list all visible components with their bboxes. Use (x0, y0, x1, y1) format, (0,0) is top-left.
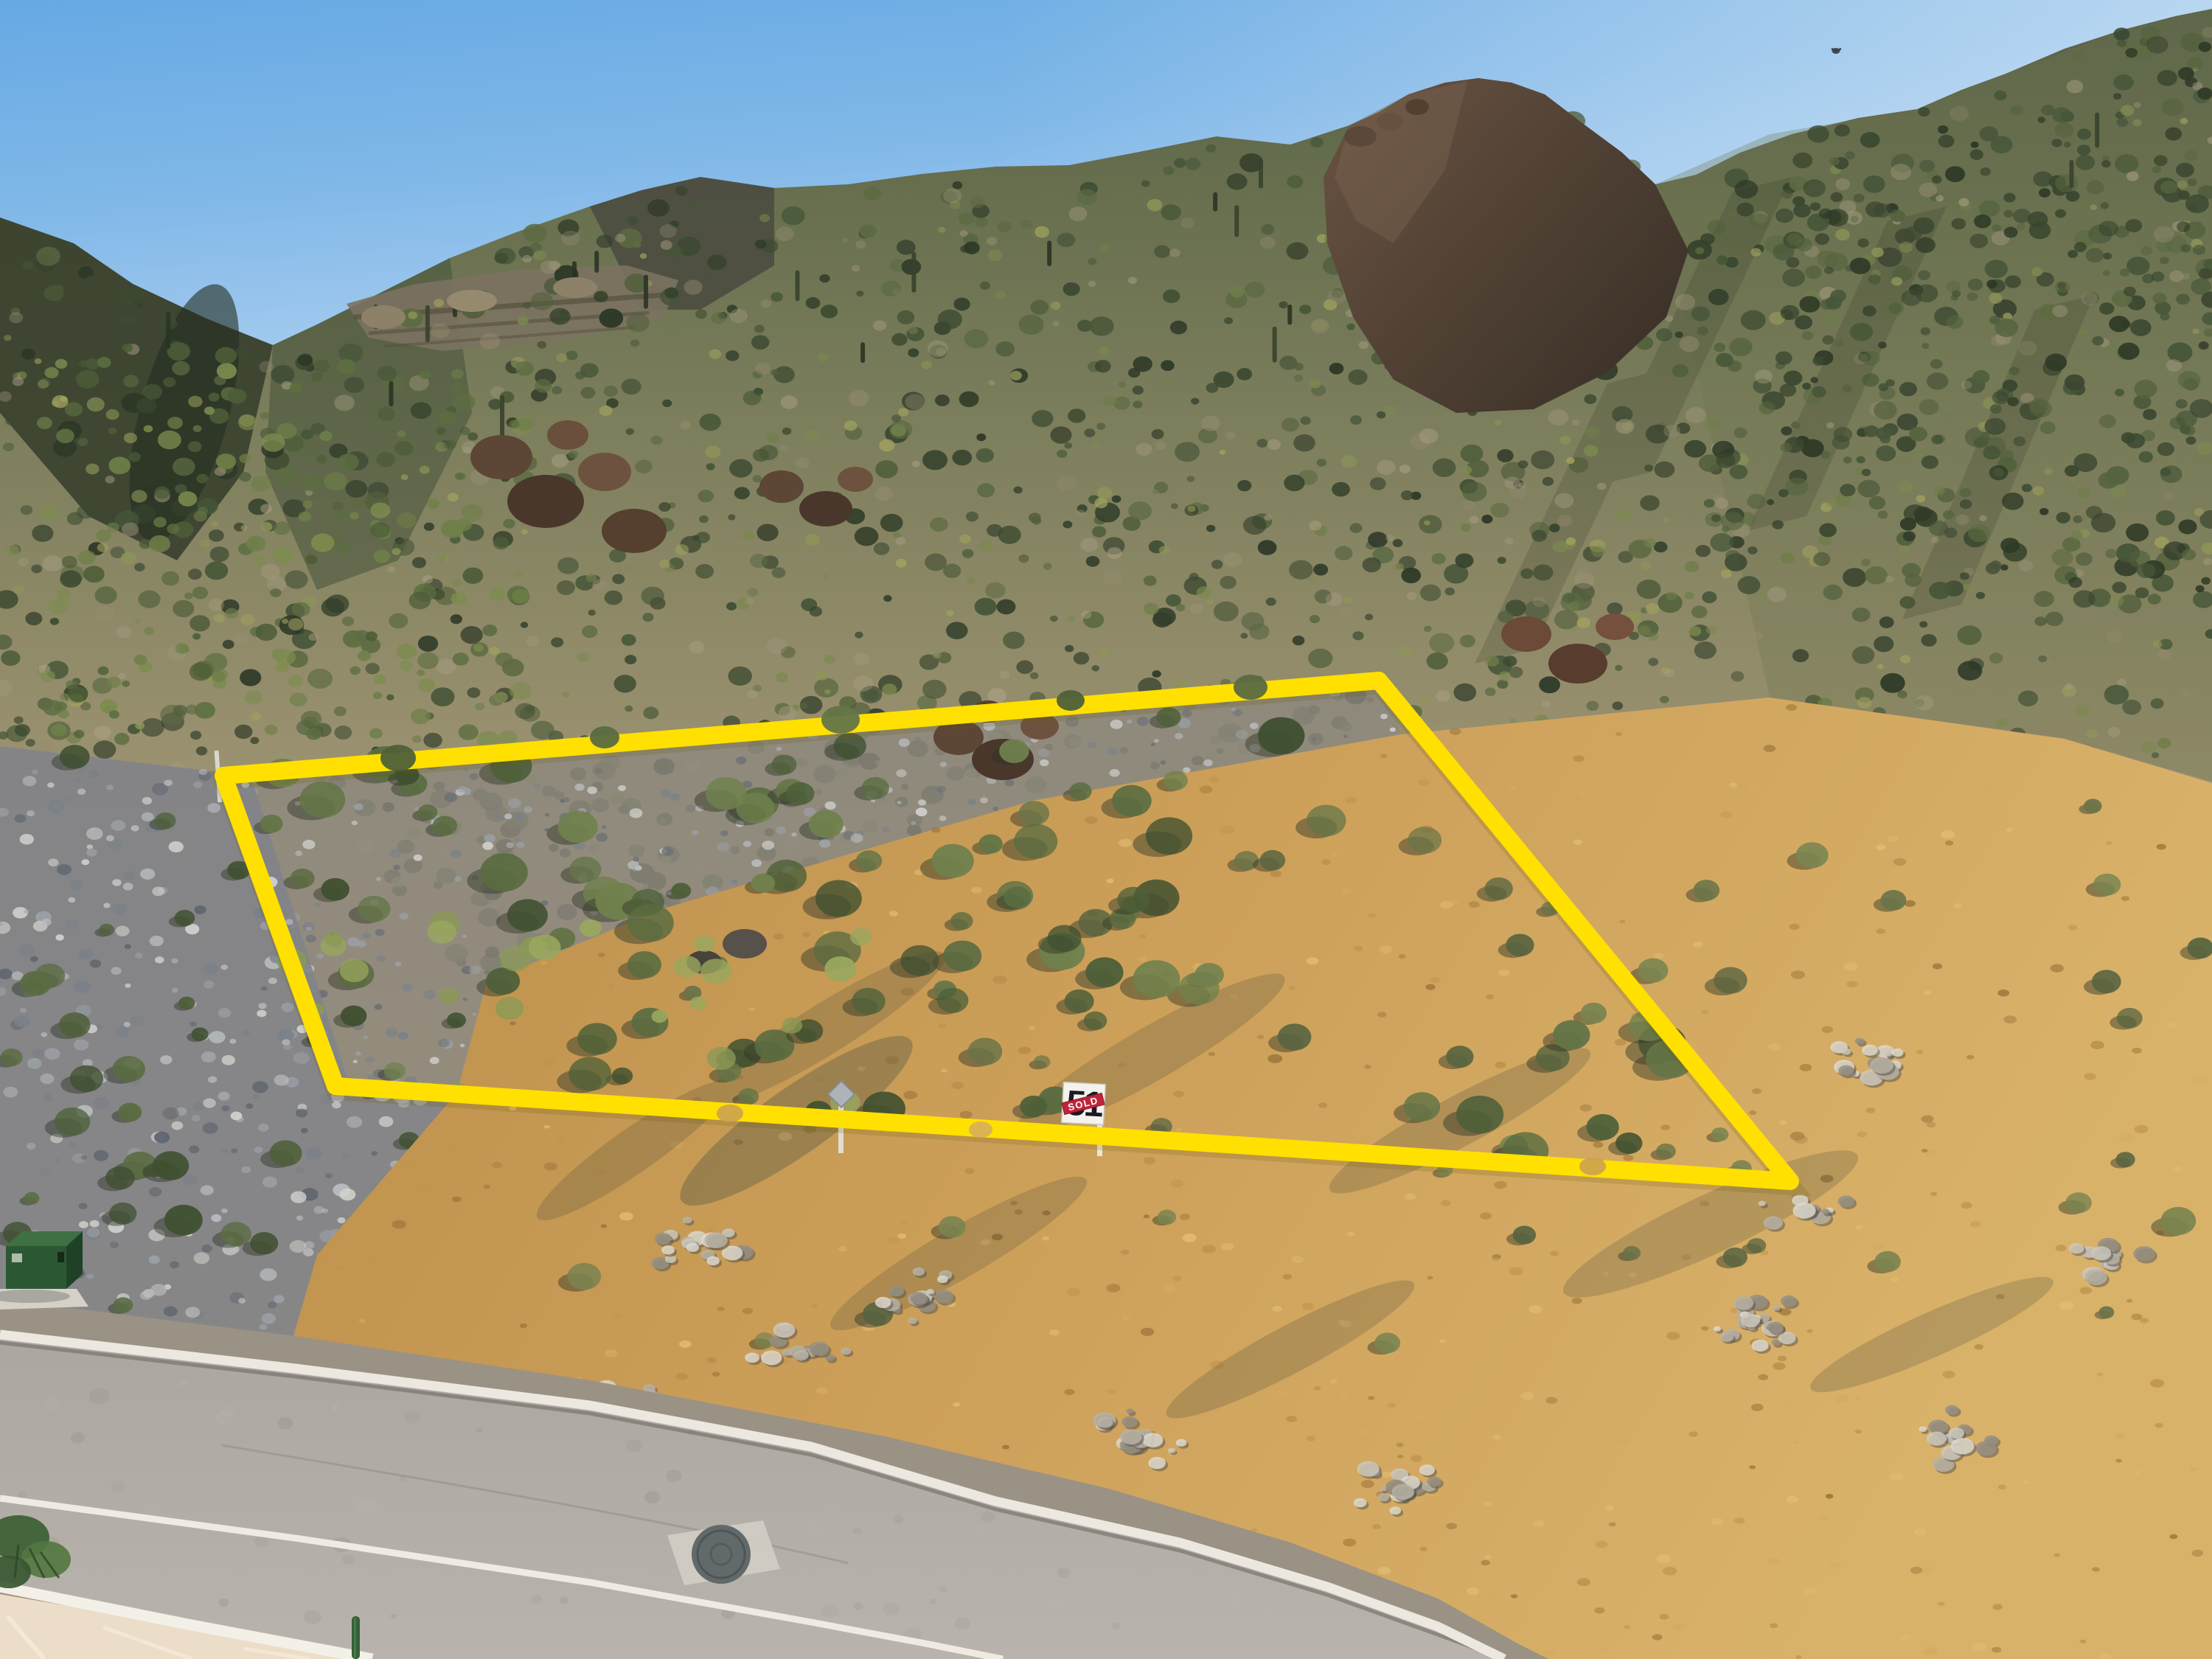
mountain-ground-flecks-dot (119, 673, 126, 679)
cobble-stones-dot (296, 1166, 305, 1174)
grass-tufts-dot (1382, 1472, 1392, 1478)
lot-gravel-stones-dot (506, 842, 514, 848)
cobble-stones-dot (282, 1039, 290, 1045)
mountain-shrubs-dot (1648, 658, 1658, 666)
valley-greenery-dot (376, 452, 395, 467)
grass-tufts-dot (1176, 1128, 1182, 1132)
grass-bushes-dot (2117, 1008, 2143, 1029)
mountain-shrubs-dot (998, 221, 1012, 232)
grass-tufts-dot (1498, 970, 1509, 976)
mountain-accent-shrubs-dot (1685, 561, 1699, 572)
upper-right-vegetation-dot (1782, 268, 1805, 287)
mountain-shrubs-dot (1741, 310, 1766, 330)
mountain-ground-flecks-dot (2134, 102, 2141, 108)
lot-gravel-stones-dot (897, 801, 901, 804)
cobble-stones-dot (172, 988, 178, 992)
white-rock-clusters-dot (745, 1352, 759, 1363)
lot-gravel-stones-dot (400, 913, 408, 919)
upper-right-vegetation-dot (2098, 220, 2118, 236)
grass-tufts-dot (1997, 990, 2009, 997)
mountain-shrubs-dot (1050, 426, 1071, 443)
mountain-shrubs-dot (953, 181, 963, 189)
grass-tufts-dot (1440, 901, 1453, 909)
mountain-ground-flecks-dot (1958, 198, 1969, 206)
cobble-stones-dot (171, 959, 178, 964)
mountain-accent-shrubs-dot (2051, 656, 2057, 661)
valley-greenery-dot (275, 467, 298, 485)
upper-right-vegetation-dot (2152, 271, 2165, 282)
upper-right-vegetation-dot (1824, 267, 1834, 274)
upper-right-vegetation-dot (1773, 243, 1795, 260)
mountain-shrubs-dot (1863, 305, 1877, 316)
upper-right-vegetation-dot (1929, 582, 1951, 599)
mountain-shrubs-dot (1065, 645, 1074, 653)
mountain-shrubs-dot (922, 680, 947, 699)
grass-tufts-dot (1593, 1141, 1604, 1147)
valley-greenery-dot (305, 554, 317, 564)
mountain-shrubs-dot (14, 717, 24, 724)
road-texture-dot (331, 1405, 339, 1411)
mountain-shrubs-dot (1888, 303, 1902, 313)
upper-right-vegetation-dot (1845, 151, 1854, 159)
mountain-shrubs-dot (855, 632, 863, 639)
cobble-stones-dot (39, 1167, 50, 1175)
cobble-stones-dot (293, 1052, 310, 1065)
valley-greenery-dot (167, 342, 190, 361)
lot-bushes-dot (671, 883, 691, 898)
white-rock-clusters-dot (2133, 1246, 2154, 1261)
valley-greenery-dot (79, 360, 88, 367)
mountain-accent-shrubs-dot (1934, 487, 1944, 495)
grass-tufts-dot (931, 827, 941, 833)
mountain-shrubs-dot (1224, 317, 1233, 324)
mountain-shrubs-dot (1424, 626, 1432, 633)
mountain-ground-flecks-dot (730, 309, 748, 323)
grass-tufts-dot (1405, 1193, 1416, 1200)
mountain-shrubs-dot (1141, 180, 1150, 187)
mountain-shrubs-dot (1030, 300, 1048, 315)
valley-greenery-dot (209, 393, 220, 402)
mountain-accent-shrubs-dot (521, 529, 528, 534)
lot-gravel-stones-dot (717, 842, 729, 852)
mountain-ground-flecks-dot (1082, 611, 1092, 619)
cobble-stones-dot (43, 1094, 54, 1102)
mountain-shrubs-dot (521, 622, 529, 627)
mountain-shrubs-dot (326, 594, 349, 613)
road-texture-dot (939, 1586, 947, 1593)
mountain-shrubs-dot (966, 512, 978, 522)
upper-right-vegetation-dot (2040, 422, 2056, 434)
mountain-accent-shrubs-dot (933, 652, 941, 658)
mountain-shrubs-dot (959, 212, 975, 225)
lot-bushes-dot (1178, 972, 1219, 1004)
mountain-accent-shrubs-dot (1098, 649, 1110, 658)
cobble-bushes-dot (114, 1297, 133, 1312)
mountain-shrubs-dot (123, 375, 139, 387)
mountain-ground-flecks-dot (1931, 537, 1939, 543)
lot-bushes-dot (999, 739, 1029, 763)
road-texture-dot (1160, 1592, 1171, 1601)
mountain-accent-shrubs-dot (1094, 498, 1107, 508)
mountain-ground-flecks-dot (795, 457, 809, 468)
mountain-accent-shrubs-dot (599, 406, 613, 416)
cobble-stones-dot (51, 807, 61, 815)
mountain-shrubs-dot (1927, 372, 1948, 390)
cobble-stones-dot (155, 956, 164, 963)
mountain-shrubs-dot (771, 369, 779, 376)
mountain-shrubs-dot (1174, 158, 1186, 167)
upper-right-vegetation-dot (2117, 118, 2129, 127)
mountain-shrubs-dot (285, 570, 308, 588)
road-texture-dot (626, 1439, 643, 1453)
mountain-shrubs-dot (523, 224, 546, 243)
lot-bushes-dot (627, 951, 661, 978)
mountain-accent-shrubs-dot (1781, 552, 1795, 563)
mountain-shrubs-dot (86, 276, 94, 282)
lot-bushes-dot (1112, 785, 1152, 817)
grass-tufts-dot (1042, 1237, 1049, 1241)
valley-greenery-dot (437, 554, 446, 562)
grass-tufts-dot (1597, 1646, 1607, 1652)
lot-bushes-dot (978, 835, 1003, 854)
mountain-shrubs-dot (1018, 554, 1029, 563)
mountain-shrubs-dot (5, 418, 14, 425)
cacti-silhouettes-dot (795, 271, 799, 302)
mountain-shrubs-dot (2113, 93, 2121, 100)
mountain-accent-shrubs-dot (201, 540, 211, 548)
white-rock-clusters-dot (773, 1322, 796, 1338)
grass-tufts-dot (1377, 1567, 1391, 1575)
mountain-ground-flecks-dot (94, 726, 111, 740)
grass-tufts-dot (1573, 840, 1582, 846)
upper-right-vegetation-dot (1716, 453, 1735, 468)
valley-greenery-dot (198, 507, 208, 515)
mountain-shrubs-dot (1637, 580, 1661, 599)
mountain-shrubs-dot (1163, 289, 1180, 303)
grass-bushes-dot (939, 1216, 966, 1237)
grass-tufts-dot (1221, 1243, 1234, 1251)
upper-right-vegetation-dot (1734, 428, 1747, 438)
grass-bushes-dot (1408, 827, 1441, 854)
mountain-accent-shrubs-dot (1172, 677, 1188, 689)
mountain-shrubs-dot (460, 626, 482, 644)
grass-tufts-dot (1121, 1250, 1130, 1255)
mountain-accent-shrubs-dot (495, 692, 508, 702)
valley-greenery-dot (302, 501, 313, 509)
valley-greenery-dot (215, 347, 237, 364)
mountain-shrubs-dot (1057, 233, 1075, 248)
mountain-shrubs-dot (1660, 696, 1669, 703)
grass-bushes-dot (567, 1263, 601, 1290)
mountain-shrubs-dot (1989, 279, 2006, 293)
valley-greenery-dot (217, 363, 237, 379)
cobble-stones-dot (142, 797, 153, 804)
mountain-shrubs-dot (196, 746, 207, 755)
mountain-accent-shrubs-dot (824, 655, 835, 664)
mountain-shrubs-dot (1462, 481, 1487, 501)
upper-right-vegetation-dot (1902, 563, 1921, 578)
grass-tufts-dot (2189, 1467, 2196, 1472)
upper-right-vegetation-dot (1916, 285, 1938, 302)
grass-tufts-dot (706, 1227, 715, 1232)
valley-greenery-dot (335, 511, 347, 521)
cobble-stones-dot (57, 864, 72, 875)
mountain-shrubs-dot (467, 687, 480, 698)
white-rock-clusters-dot (1751, 1340, 1768, 1352)
mountain-ground-flecks-dot (1615, 419, 1634, 434)
grass-tufts-dot (1821, 1026, 1833, 1033)
mountain-accent-shrubs-dot (1584, 445, 1599, 457)
white-rock-clusters-dot (1354, 1498, 1367, 1508)
mountain-accent-shrubs-dot (1963, 584, 1971, 591)
mountain-ground-flecks-dot (1750, 651, 1759, 658)
grass-tufts-dot (1826, 1494, 1834, 1499)
cobble-stones-dot (81, 859, 89, 865)
mountain-shrubs-dot (1068, 408, 1085, 422)
cobble-stones-dot (257, 1010, 266, 1018)
grass-tufts-dot (1018, 1046, 1031, 1054)
mountain-shrubs-dot (172, 361, 189, 375)
cobble-stones-dot (203, 1098, 216, 1107)
upper-right-vegetation-dot (2069, 577, 2082, 588)
grass-tufts-dot (1800, 803, 1812, 810)
grass-tufts-dot (1107, 1389, 1117, 1395)
mountain-shrubs-dot (161, 571, 179, 585)
upper-right-vegetation-dot (2009, 366, 2020, 375)
grass-tufts-dot (1844, 962, 1858, 970)
grass-tufts-dot (810, 1304, 818, 1309)
grass-tufts-dot (1741, 1042, 1750, 1048)
mountain-accent-shrubs-dot (577, 653, 589, 662)
grass-tufts-dot (1938, 1601, 1945, 1606)
mountain-shrubs-dot (193, 425, 202, 432)
cobble-stones-dot (70, 880, 83, 890)
grass-tufts-dot (1773, 1363, 1785, 1370)
mountain-shrubs-dot (1531, 451, 1554, 470)
grass-tufts-dot (1208, 1052, 1215, 1057)
mountain-shrubs-dot (188, 441, 202, 452)
lot-gravel-stones-dot (393, 865, 400, 870)
lot-gravel-stones-dot (430, 1057, 439, 1064)
mountain-shrubs-dot (188, 568, 202, 580)
mountain-ground-flecks-dot (2166, 359, 2182, 372)
upper-right-vegetation-dot (1945, 166, 1965, 182)
upper-right-vegetation-dot (2188, 178, 2197, 186)
mountain-shrubs-dot (860, 224, 877, 237)
grass-tufts-dot (1486, 995, 1494, 1000)
lot-gravel-stones-dot (762, 841, 774, 850)
valley-greenery-dot (343, 630, 365, 648)
mountain-accent-shrubs-dot (742, 531, 755, 541)
upper-right-vegetation-dot (2146, 36, 2168, 54)
lot-bushes-dot (1553, 1020, 1590, 1049)
mountain-shrubs-dot (1654, 541, 1668, 552)
mountain-ground-flecks-dot (960, 230, 968, 237)
cobble-stones-dot (44, 1048, 60, 1060)
mountain-shrubs-dot (594, 291, 608, 302)
lot-gravel-stones-dot (1108, 748, 1118, 755)
grass-tufts-dot (1138, 934, 1147, 939)
lot-bushes-dot (568, 1057, 611, 1091)
mountain-shrubs-dot (1019, 315, 1044, 335)
road-texture-dot (476, 1427, 482, 1433)
upper-right-vegetation-dot (2134, 380, 2157, 398)
grass-tufts-dot (1795, 1655, 1802, 1659)
mountain-shrubs-dot (451, 614, 462, 624)
road-texture-dot (883, 1602, 900, 1616)
mountain-accent-shrubs-dot (1395, 563, 1404, 570)
mountain-shrubs-dot (2140, 246, 2152, 255)
mountain-shrubs-dot (962, 549, 974, 557)
mountain-shrubs-dot (582, 625, 597, 638)
cobble-stones-dot (274, 1074, 289, 1085)
lot-gravel-stones-dot (414, 855, 422, 861)
mountain-shrubs-dot (1861, 559, 1871, 566)
grass-tufts-dot (1873, 1242, 1885, 1250)
upper-right-vegetation-dot (1909, 427, 1927, 442)
upper-right-vegetation-dot (1983, 445, 2000, 459)
upper-right-vegetation-dot (2160, 257, 2169, 264)
lot-bushes-dot (557, 811, 597, 844)
valley-greenery-dot (378, 407, 395, 421)
mountain-ground-flecks-dot (1057, 475, 1077, 490)
mountain-accent-shrubs-dot (1197, 586, 1212, 599)
mountain-shrubs-dot (566, 351, 577, 361)
mountain-shrubs-dot (643, 706, 658, 719)
lot-bushes-dot (432, 815, 457, 835)
white-rock-clusters-dot (1392, 1484, 1414, 1500)
white-rock-clusters-dot (1767, 1321, 1784, 1332)
mountain-shrubs-dot (1186, 158, 1201, 170)
upper-right-vegetation-dot (2055, 174, 2078, 192)
valley-greenery-dot (195, 702, 215, 719)
upper-right-vegetation-dot (1932, 175, 1942, 184)
grass-tufts-dot (520, 1324, 528, 1328)
white-rock-clusters-dot (1949, 1427, 1965, 1439)
mountain-ground-flecks-dot (2019, 560, 2034, 571)
grass-tufts-dot (1141, 1328, 1155, 1336)
mountain-shrubs-dot (1921, 343, 1929, 349)
valley-greenery-dot (251, 476, 271, 492)
cobble-stones-dot (222, 1149, 229, 1154)
mountain-shrubs-dot (1445, 588, 1455, 596)
lot-bushes-dot (428, 920, 456, 943)
mountain-ground-flecks-dot (1377, 460, 1395, 475)
grass-tufts-dot (1818, 1514, 1829, 1520)
lot-gravel-stones-dot (992, 807, 998, 811)
mountain-shrubs-dot (1880, 673, 1905, 693)
road-texture-dot (1111, 1622, 1120, 1630)
grass-tufts-dot (2132, 1048, 2141, 1054)
grass-tufts-dot (742, 1308, 753, 1315)
mountain-shrubs-dot (335, 726, 352, 740)
mountain-shrubs-dot (2103, 253, 2112, 260)
white-rock-clusters-dot (1419, 1464, 1435, 1475)
mountain-accent-shrubs-dot (188, 396, 202, 408)
mountain-accent-shrubs-dot (1310, 379, 1321, 389)
mountain-shrubs-dot (699, 515, 709, 523)
grass-tufts-dot (1864, 866, 1874, 872)
cobble-stones-dot (262, 1177, 277, 1188)
grass-tufts-dot (1782, 1402, 1792, 1408)
upper-right-vegetation-dot (2199, 42, 2211, 52)
grass-tufts-dot (1318, 1102, 1327, 1107)
upper-right-vegetation-dot (1974, 437, 1988, 448)
grass-tufts-dot (1182, 1234, 1196, 1242)
grass-tufts-dot (1688, 1431, 1698, 1437)
lot-bushes-dot (480, 853, 528, 891)
mountain-shrubs-dot (751, 335, 770, 349)
mountain-shrubs-dot (1095, 360, 1111, 372)
cobble-bushes-dot (20, 971, 51, 996)
lot-bushes-dot (1084, 1012, 1107, 1030)
mountain-accent-shrubs-dot (214, 613, 225, 622)
grass-tufts-dot (2157, 844, 2166, 849)
mountain-accent-shrubs-dot (1010, 371, 1022, 380)
lot-gravel-stones-dot (661, 847, 673, 856)
grass-tufts-dot (1202, 1245, 1216, 1253)
valley-greenery-dot (451, 369, 464, 379)
mountain-ground-flecks-dot (1135, 442, 1152, 456)
mountain-shrubs-dot (782, 428, 791, 435)
grass-tufts-dot (1749, 1465, 1756, 1469)
grass-tufts-dot (1666, 1332, 1680, 1340)
mountain-shrubs-dot (902, 259, 922, 274)
lot-bushes-dot (1586, 1114, 1618, 1141)
grass-bushes-dot (2115, 1152, 2135, 1167)
mountain-shrubs-dot (1245, 282, 1265, 298)
grass-tufts-dot (1747, 785, 1761, 794)
grass-tufts-dot (1900, 1634, 1911, 1641)
lot-bushes-dot (1133, 960, 1180, 998)
valley-greenery-dot (273, 547, 293, 564)
cobble-stones-dot (170, 1261, 179, 1268)
mountain-shrubs-dot (531, 720, 554, 739)
mountain-shrubs-dot (1951, 295, 1958, 301)
upper-right-vegetation-dot (2124, 287, 2136, 296)
mountain-shrubs-dot (234, 725, 252, 740)
mountain-ground-flecks-dot (2018, 341, 2037, 355)
cobble-bushes-dot (250, 1232, 278, 1254)
white-rock-clusters-dot (2069, 1243, 2084, 1254)
lot-gravel-stones-dot (1182, 709, 1192, 717)
mountain-shrubs-dot (2151, 698, 2164, 709)
lot-gravel-stones-dot (454, 876, 462, 881)
grass-tufts-dot (1425, 984, 1436, 990)
upper-right-vegetation-dot (2178, 371, 2200, 389)
mountain-accent-shrubs-dot (1916, 495, 1926, 502)
grass-tufts-dot (1342, 888, 1352, 894)
cobble-stones-dot (124, 1022, 131, 1027)
mountain-accent-shrubs-dot (1092, 442, 1100, 449)
mountain-accent-shrubs-dot (240, 613, 254, 625)
grass-tufts-dot (1764, 745, 1775, 752)
valley-greenery-dot (397, 512, 417, 528)
mountain-shrubs-dot (1030, 672, 1039, 679)
mountain-ground-flecks-dot (1935, 195, 1944, 202)
mountain-ground-flecks-dot (1310, 319, 1329, 334)
mountain-shrubs-dot (1368, 532, 1388, 548)
mountain-shrubs-dot (1294, 375, 1303, 382)
mountain-shrubs-dot (93, 740, 116, 759)
valley-greenery-dot (158, 431, 181, 450)
grass-tufts-dot (1623, 1155, 1633, 1161)
valley-greenery-dot (239, 453, 251, 463)
lot-gravel-stones-dot (574, 784, 584, 791)
lot-gravel-stones-dot (482, 842, 493, 850)
lot-gravel-stones-dot (916, 807, 928, 816)
mountain-ground-flecks-dot (1069, 206, 1088, 221)
